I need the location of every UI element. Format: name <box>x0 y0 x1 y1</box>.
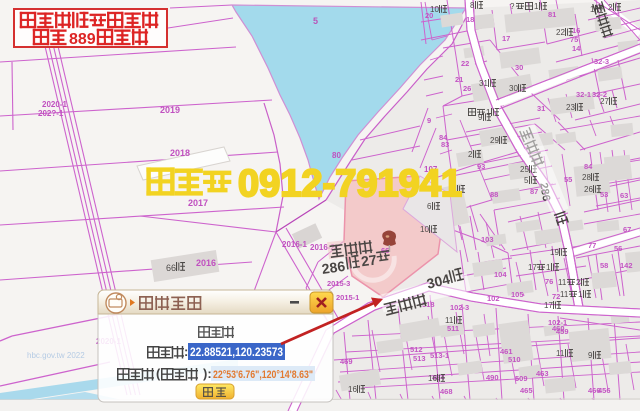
svg-text:27: 27 <box>600 97 609 106</box>
svg-text:889: 889 <box>69 31 96 48</box>
svg-text:22.88521,120.23573: 22.88521,120.23573 <box>190 345 283 359</box>
svg-text:58: 58 <box>600 261 608 270</box>
svg-text:56: 56 <box>614 244 622 253</box>
svg-text:17: 17 <box>544 301 553 310</box>
svg-text:14: 14 <box>572 44 581 53</box>
svg-text:461: 461 <box>500 347 513 356</box>
svg-text:31: 31 <box>537 104 545 113</box>
svg-text:8: 8 <box>470 1 475 10</box>
svg-text:286: 286 <box>321 258 347 277</box>
svg-text:490: 490 <box>486 373 499 382</box>
svg-text:76: 76 <box>545 277 553 286</box>
svg-text:456: 456 <box>598 386 611 395</box>
svg-text:?: ? <box>510 2 515 11</box>
svg-text:5: 5 <box>313 16 318 26</box>
svg-text:22°53'6.76",120°14'8.63": 22°53'6.76",120°14'8.63" <box>213 369 313 381</box>
svg-text:511: 511 <box>447 324 459 333</box>
svg-text:77: 77 <box>588 241 596 250</box>
svg-text:202?-1: 202?-1 <box>38 109 64 118</box>
svg-text:9: 9 <box>427 116 431 125</box>
svg-text:30: 30 <box>509 84 518 93</box>
svg-text:105: 105 <box>511 290 524 299</box>
svg-text:1: 1 <box>578 290 583 299</box>
svg-text:513-1: 513-1 <box>430 351 449 360</box>
svg-text:2: 2 <box>468 150 473 159</box>
svg-text:2015-1: 2015-1 <box>336 293 359 302</box>
svg-text:63: 63 <box>620 191 628 200</box>
svg-text:2016: 2016 <box>196 258 216 268</box>
svg-text:11: 11 <box>560 290 569 299</box>
svg-text:2: 2 <box>608 3 613 12</box>
svg-text:0912-791941: 0912-791941 <box>238 163 462 205</box>
svg-text:22: 22 <box>461 59 469 68</box>
svg-text:23: 23 <box>566 103 575 112</box>
svg-text:10: 10 <box>420 225 429 234</box>
svg-text:510: 510 <box>508 355 521 364</box>
svg-text:26: 26 <box>584 185 593 194</box>
svg-text:5: 5 <box>524 176 529 185</box>
svg-text:17: 17 <box>528 263 537 272</box>
svg-text:87: 87 <box>530 187 538 196</box>
svg-text:2017: 2017 <box>188 198 208 208</box>
svg-text:465: 465 <box>520 386 533 395</box>
svg-text:27: 27 <box>360 251 378 269</box>
svg-text:55: 55 <box>564 175 572 184</box>
svg-text:19: 19 <box>550 248 559 257</box>
svg-text:2018: 2018 <box>170 148 190 158</box>
svg-text:2: 2 <box>576 278 581 287</box>
svg-text:26: 26 <box>463 84 471 93</box>
svg-text:10: 10 <box>430 5 439 14</box>
svg-text:16: 16 <box>572 26 580 35</box>
svg-text:11: 11 <box>558 278 567 287</box>
svg-text:93: 93 <box>477 162 485 171</box>
svg-text:67: 67 <box>623 225 631 234</box>
svg-text:25: 25 <box>520 165 529 174</box>
svg-text:75: 75 <box>570 35 578 44</box>
svg-text:11: 11 <box>556 349 565 358</box>
svg-text:53: 53 <box>600 190 608 199</box>
svg-text::: : <box>184 344 188 359</box>
svg-text:103: 103 <box>481 235 494 244</box>
svg-text:17: 17 <box>502 34 510 43</box>
svg-text:66: 66 <box>166 263 176 273</box>
svg-text:29: 29 <box>490 136 499 145</box>
svg-text:81: 81 <box>548 10 556 19</box>
svg-text:2020-1: 2020-1 <box>42 100 67 109</box>
svg-text:83: 83 <box>441 140 449 149</box>
svg-text:hbc.gov.tw 2022: hbc.gov.tw 2022 <box>27 351 85 360</box>
svg-text:1: 1 <box>534 2 539 11</box>
svg-text:18: 18 <box>466 15 474 24</box>
svg-text:9: 9 <box>588 351 593 360</box>
svg-text:509: 509 <box>515 374 528 383</box>
svg-text:469: 469 <box>340 357 353 366</box>
svg-text:1: 1 <box>486 108 491 117</box>
svg-text:21: 21 <box>455 75 463 84</box>
svg-text:16: 16 <box>348 385 357 394</box>
svg-text:2019: 2019 <box>160 105 180 115</box>
svg-text:84: 84 <box>584 162 593 171</box>
svg-text:2016-1: 2016-1 <box>282 240 307 249</box>
svg-text:32-1: 32-1 <box>576 90 591 99</box>
svg-text:32-3: 32-3 <box>594 57 609 66</box>
svg-text:11: 11 <box>445 316 454 325</box>
svg-text:102: 102 <box>487 294 500 303</box>
svg-text:88: 88 <box>490 190 498 199</box>
svg-text:512: 512 <box>410 345 423 354</box>
svg-text:22: 22 <box>556 28 565 37</box>
svg-text:513: 513 <box>413 354 426 363</box>
svg-text:104: 104 <box>494 270 507 279</box>
svg-text:80: 80 <box>332 151 341 160</box>
svg-text:):: ): <box>203 366 212 381</box>
svg-text:468: 468 <box>440 387 453 396</box>
svg-text:30: 30 <box>515 63 523 72</box>
svg-text:463: 463 <box>536 369 549 378</box>
svg-text:102-3: 102-3 <box>450 303 469 312</box>
svg-text:102-1: 102-1 <box>548 318 567 327</box>
svg-text:(: ( <box>156 366 161 381</box>
svg-text:16: 16 <box>428 374 437 383</box>
svg-text:142: 142 <box>620 261 633 270</box>
svg-text:2015-3: 2015-3 <box>327 279 350 288</box>
svg-text:31: 31 <box>479 79 488 88</box>
svg-text:1: 1 <box>546 263 551 272</box>
svg-text:28: 28 <box>582 173 591 182</box>
